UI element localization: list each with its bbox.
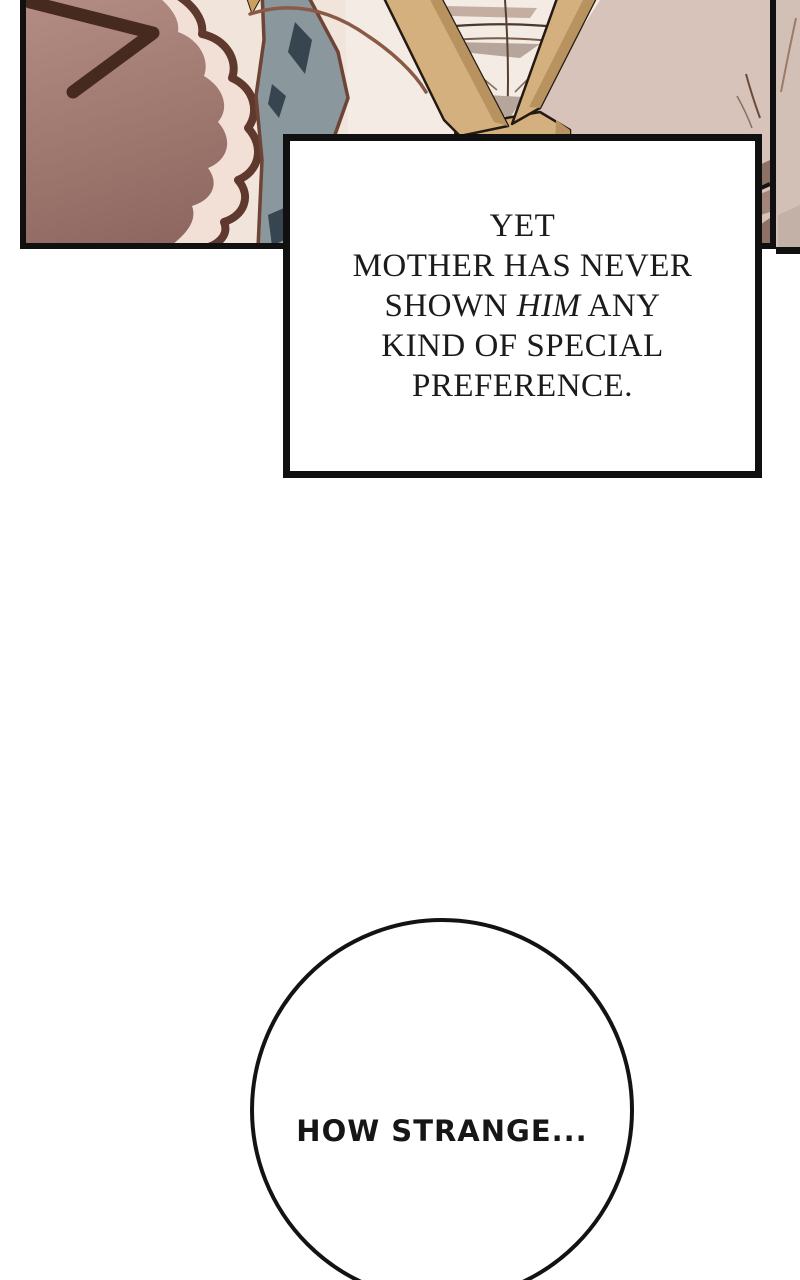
narration-box: YET MOTHER HAS NEVER SHOWN HIM ANY KIND … xyxy=(283,134,762,478)
narration-line: MOTHER HAS NEVER xyxy=(353,246,693,286)
narration-emphasis: HIM xyxy=(517,288,581,324)
narration-line: KIND OF SPECIAL xyxy=(381,326,664,366)
narration-line: YET xyxy=(490,206,556,246)
speech-bubble: HOW STRANGE... xyxy=(250,918,634,1280)
narration-line: PREFERENCE. xyxy=(412,366,633,406)
speech-text: HOW STRANGE... xyxy=(254,1114,630,1148)
narration-line: SHOWN HIM ANY xyxy=(385,286,661,326)
webtoon-page: YET MOTHER HAS NEVER SHOWN HIM ANY KIND … xyxy=(0,0,800,1280)
side-panel-strip xyxy=(776,0,800,254)
